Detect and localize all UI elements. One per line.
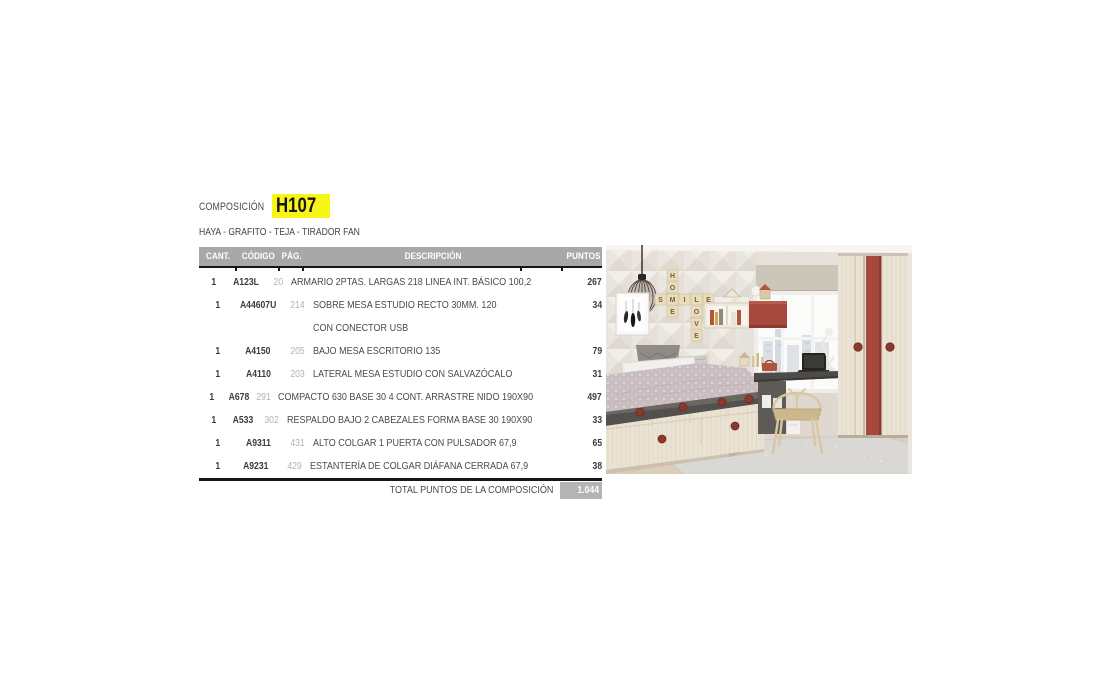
total-row: TOTAL PUNTOS DE LA COMPOSICIÓN 1.044 <box>199 478 602 499</box>
composition-code-highlight: H107 <box>272 194 330 218</box>
bed <box>606 345 764 474</box>
svg-text:I: I <box>684 297 686 304</box>
svg-text:V: V <box>694 321 699 328</box>
composition-label: COMPOSICIÓN <box>199 201 281 213</box>
header-descripcion: DESCRIPCIÓN <box>305 251 560 262</box>
total-points-value: 1.044 <box>560 482 602 499</box>
table-header-row: CANT. CÓDIGO PÁG. DESCRIPCIÓN PUNTOS <box>199 247 602 268</box>
svg-text:O: O <box>670 285 676 292</box>
svg-text:S: S <box>658 297 663 304</box>
table-row: 1 A533 302 RESPALDO BAJO 2 CABEZALES FOR… <box>199 409 602 432</box>
scrabble-tile: H <box>667 270 678 281</box>
header-cant: CANT. <box>199 251 237 262</box>
table-row: 1 A9311 431 ALTO COLGAR 1 PUERTA CON PUL… <box>199 432 602 455</box>
header-codigo: CÓDIGO <box>237 251 279 262</box>
svg-text:M: M <box>670 297 676 304</box>
total-label: TOTAL PUNTOS DE LA COMPOSICIÓN <box>363 481 553 499</box>
catalog-page: COMPOSICIÓN H107 HAYA - GRAFITO - TEJA -… <box>0 0 1100 700</box>
header-pag: PÁG. <box>279 251 305 262</box>
svg-text:E: E <box>694 333 699 340</box>
table-row: 1 A44607U 214 SOBRE MESA ESTUDIO RECTO 3… <box>199 294 602 340</box>
svg-text:L: L <box>694 297 699 304</box>
table-row: 1 A4110 203 LATERAL MESA ESTUDIO CON SAL… <box>199 363 602 386</box>
table-row: 1 A9231 429 ESTANTERÍA DE COLGAR DIÁFANA… <box>199 455 602 478</box>
svg-text:O: O <box>694 309 700 316</box>
finishes-line: HAYA - GRAFITO - TEJA - TIRADOR FAN <box>199 226 395 238</box>
room-photo: H O M E S I L E O V <box>606 245 912 474</box>
svg-text:E: E <box>670 309 675 316</box>
table-row: 1 A123L 20 ARMARIO 2PTAS. LARGAS 218 LIN… <box>199 271 602 294</box>
table-row: 1 A4150 205 BAJO MESA ESCRITORIO 135 79 <box>199 340 602 363</box>
header-puntos: PUNTOS <box>560 251 602 262</box>
svg-text:H: H <box>670 273 675 280</box>
table-row: 1 A678 291 COMPACTO 630 BASE 30 4 CONT. … <box>199 386 602 409</box>
picture-frame <box>616 293 649 335</box>
composition-table: CANT. CÓDIGO PÁG. DESCRIPCIÓN PUNTOS 1 A… <box>199 247 602 499</box>
